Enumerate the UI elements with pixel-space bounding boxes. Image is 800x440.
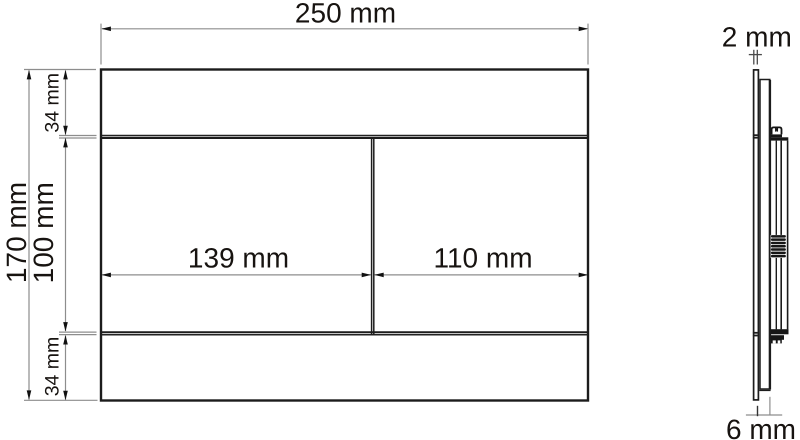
svg-text:170 mm: 170 mm: [1, 182, 32, 283]
svg-text:34 mm: 34 mm: [42, 337, 64, 397]
svg-text:2 mm: 2 mm: [722, 21, 792, 52]
svg-text:34 mm: 34 mm: [42, 73, 64, 133]
svg-text:6 mm: 6 mm: [726, 414, 796, 440]
svg-text:250 mm: 250 mm: [295, 0, 396, 28]
svg-text:139 mm: 139 mm: [188, 243, 289, 274]
svg-text:100 mm: 100 mm: [28, 182, 59, 283]
svg-text:110 mm: 110 mm: [433, 243, 532, 274]
